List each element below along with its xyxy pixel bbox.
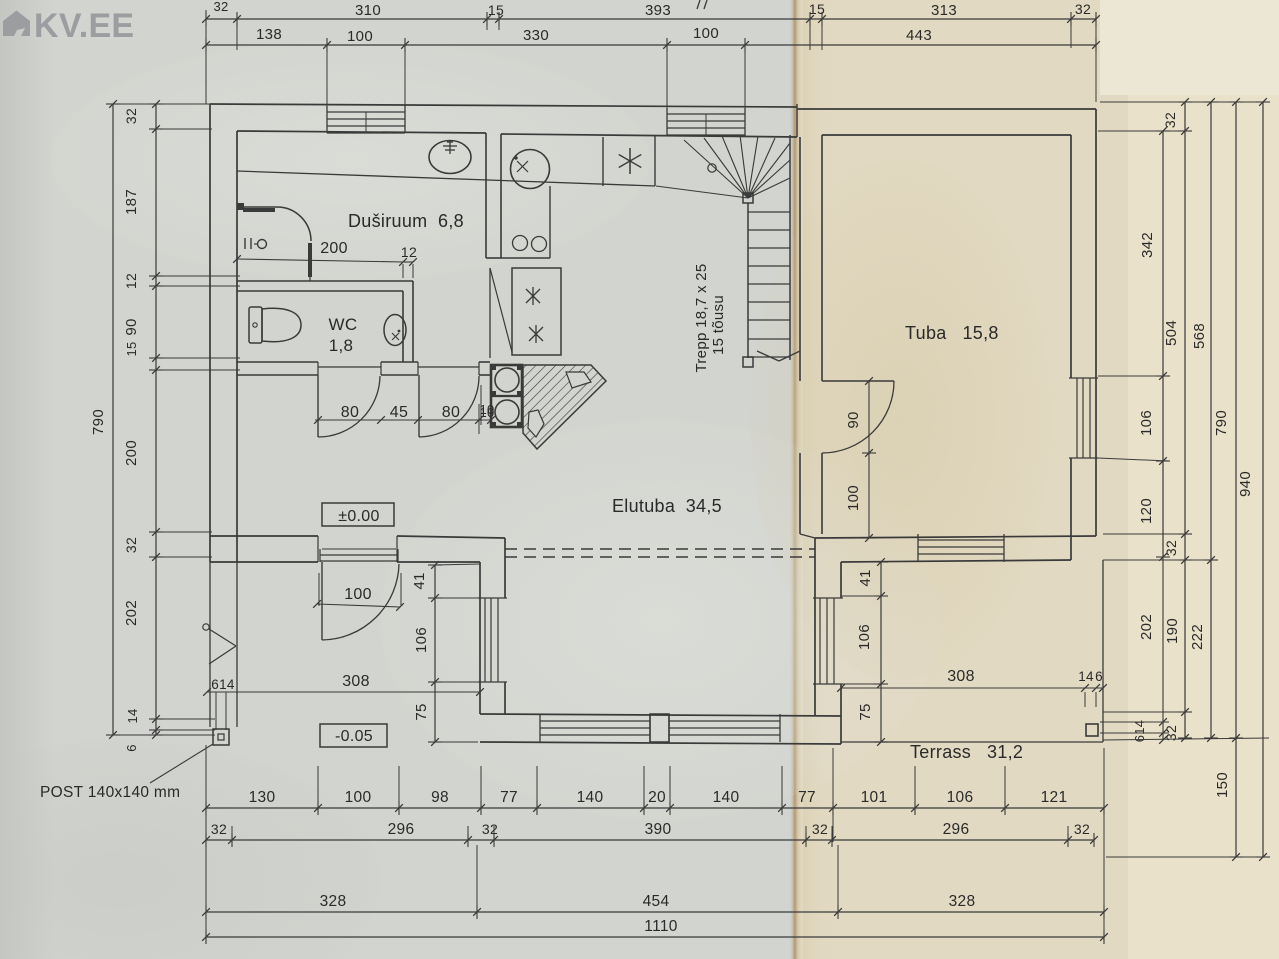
svg-text:454: 454 [643,893,670,910]
svg-text:308: 308 [342,673,370,690]
svg-text:Tuba 15,8: Tuba 15,8 [905,323,999,343]
svg-text:32: 32 [213,0,228,14]
svg-text:504: 504 [1163,320,1180,346]
svg-text:328: 328 [949,893,976,910]
svg-text:45: 45 [390,404,408,421]
svg-text:Trepp 18,7 x 25: Trepp 18,7 x 25 [693,263,710,372]
svg-text:330: 330 [523,27,549,44]
svg-text:41: 41 [857,569,874,586]
svg-text:77: 77 [500,789,518,806]
svg-text:32: 32 [1162,112,1178,128]
svg-text:106: 106 [856,624,873,650]
svg-text:32: 32 [1075,1,1091,17]
svg-text:308: 308 [947,668,975,685]
svg-text:32: 32 [211,821,227,837]
svg-text:313: 313 [931,2,957,19]
svg-text:1110: 1110 [644,918,677,935]
svg-text:130: 130 [249,789,276,806]
svg-text:296: 296 [388,821,415,838]
svg-text:6: 6 [124,744,139,752]
svg-text:390: 390 [645,821,672,838]
svg-text:32: 32 [812,821,828,837]
svg-text:296: 296 [943,821,970,838]
svg-text:POST 140x140 mm: POST 140x140 mm [40,784,180,801]
svg-text:106: 106 [1138,410,1155,436]
svg-text:120: 120 [1138,498,1155,524]
svg-text:-0.05: -0.05 [335,728,373,745]
svg-text:32: 32 [1074,821,1090,837]
svg-text:106: 106 [947,789,974,806]
svg-text:200: 200 [123,440,140,466]
svg-text:41: 41 [411,572,428,589]
svg-text:342: 342 [1139,232,1156,258]
svg-text:90: 90 [123,318,140,335]
svg-text:393: 393 [645,2,671,19]
svg-text:Terrass 31,2: Terrass 31,2 [910,742,1023,762]
svg-text:614: 614 [1132,720,1147,743]
svg-text:80: 80 [341,404,359,421]
svg-text:Elutuba 34,5: Elutuba 34,5 [612,496,722,516]
svg-text:790: 790 [1213,410,1230,436]
svg-text:790: 790 [90,409,107,435]
svg-text:32: 32 [123,537,139,553]
svg-text:614: 614 [211,677,235,692]
svg-text:15: 15 [809,1,825,17]
svg-text:32: 32 [1163,540,1179,556]
svg-text:200: 200 [320,240,348,257]
svg-text:±0.00: ±0.00 [338,508,379,525]
svg-text:202: 202 [123,600,140,626]
svg-text:15 tõusu: 15 tõusu [710,295,727,355]
svg-text:Duširuum 6,8: Duširuum 6,8 [348,211,464,231]
svg-text:32: 32 [123,108,139,124]
svg-text:190: 190 [1164,618,1181,644]
svg-text:WC: WC [329,315,358,334]
svg-text:100: 100 [693,25,719,42]
svg-text:100: 100 [344,586,372,603]
svg-text:568: 568 [1191,323,1208,349]
svg-text:10: 10 [479,402,494,417]
svg-text:12: 12 [123,273,139,289]
svg-text:100: 100 [845,485,862,511]
svg-text:940: 940 [1237,471,1254,497]
svg-text:101: 101 [861,789,888,806]
svg-text:328: 328 [320,893,347,910]
svg-text:150: 150 [1214,772,1231,798]
svg-text:138: 138 [256,26,282,43]
svg-text:75: 75 [413,703,430,720]
svg-text:20: 20 [648,789,666,806]
svg-text:310: 310 [355,2,381,19]
svg-text:121: 121 [1041,789,1068,806]
svg-text:KV.EE: KV.EE [34,7,134,45]
svg-text:100: 100 [345,789,372,806]
svg-text:140: 140 [713,789,740,806]
svg-text:80: 80 [442,404,460,421]
svg-text:90: 90 [845,411,862,428]
svg-text:15: 15 [124,341,139,356]
svg-text:202: 202 [1138,614,1155,640]
svg-text:106: 106 [413,627,430,653]
svg-text:12: 12 [401,244,417,260]
svg-text:77: 77 [798,789,816,806]
svg-text:15: 15 [488,2,504,18]
svg-text:100: 100 [347,28,373,45]
svg-text:32: 32 [482,821,498,837]
svg-text:222: 222 [1189,624,1206,650]
svg-text:187: 187 [123,189,140,215]
svg-text:443: 443 [906,27,932,44]
svg-text:75: 75 [857,703,874,720]
svg-text:14: 14 [1078,669,1094,684]
svg-text:140: 140 [577,789,604,806]
svg-text:14: 14 [125,708,140,723]
svg-text:1,8: 1,8 [329,336,354,355]
svg-text:98: 98 [431,789,449,806]
svg-text:6: 6 [1095,669,1103,684]
